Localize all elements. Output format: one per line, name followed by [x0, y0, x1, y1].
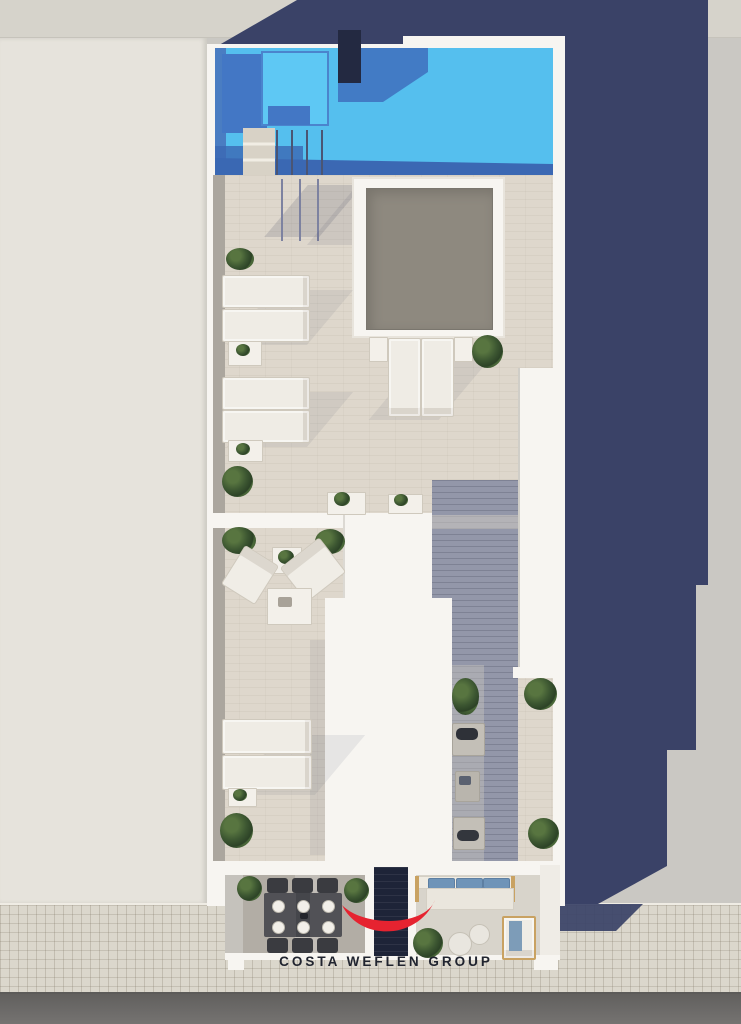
potted-plant: [452, 678, 479, 715]
table-items: [459, 776, 471, 785]
lounger-towel: [509, 921, 522, 951]
place-setting: [297, 921, 310, 934]
rooftop-aerial-render: COSTA WEFLEN GROUP: [0, 0, 741, 1024]
brand-name: COSTA WEFLEN GROUP: [207, 954, 565, 969]
place-setting: [297, 900, 310, 913]
sun-lounger: [222, 377, 310, 410]
side-table: [369, 337, 388, 362]
potted-plant: [524, 678, 557, 710]
brand-arc-logo: [330, 890, 445, 950]
sun-lounger: [421, 338, 454, 417]
potted-plant: [237, 876, 262, 901]
potted-plant: [236, 344, 250, 356]
centerpiece: [300, 913, 308, 919]
sun-lounger: [222, 309, 310, 342]
potted-plant: [394, 494, 408, 506]
right-terrace-ledge: [540, 865, 560, 955]
stair-rail: [299, 179, 301, 241]
potted-plant: [222, 466, 253, 497]
potted-plant: [236, 443, 250, 455]
sun-lounger: [222, 275, 310, 308]
bench-bag: [457, 830, 479, 841]
roof-chimney-block: [338, 30, 361, 83]
sun-lounger: [222, 719, 312, 754]
right-wall-ledge: [513, 667, 557, 678]
potted-plant: [233, 789, 247, 801]
skylight-glass: [366, 188, 493, 330]
potted-plant: [528, 818, 559, 849]
dining-chair: [267, 878, 288, 893]
potted-plant: [226, 248, 254, 270]
sun-lounger: [222, 755, 312, 790]
potted-plant: [334, 492, 350, 506]
dining-chair: [292, 938, 313, 953]
dining-chair: [267, 938, 288, 953]
sun-lounger: [388, 338, 421, 417]
dining-chair: [292, 878, 313, 893]
table-decor: [278, 597, 292, 607]
swimming-pool: [213, 46, 557, 178]
stair-rail: [281, 179, 283, 241]
potted-plant: [220, 813, 253, 848]
roof-volume-small: [343, 515, 432, 598]
side-table: [454, 337, 473, 362]
right-wall-strip: [518, 368, 554, 668]
round-table: [469, 924, 490, 945]
place-setting: [272, 921, 285, 934]
place-setting: [272, 900, 285, 913]
bench-bag: [456, 728, 478, 740]
potted-plant: [472, 335, 503, 368]
decking-walkway-band: [432, 515, 518, 529]
sun-lounger: [222, 410, 310, 443]
roof-volume-large: [325, 598, 452, 863]
